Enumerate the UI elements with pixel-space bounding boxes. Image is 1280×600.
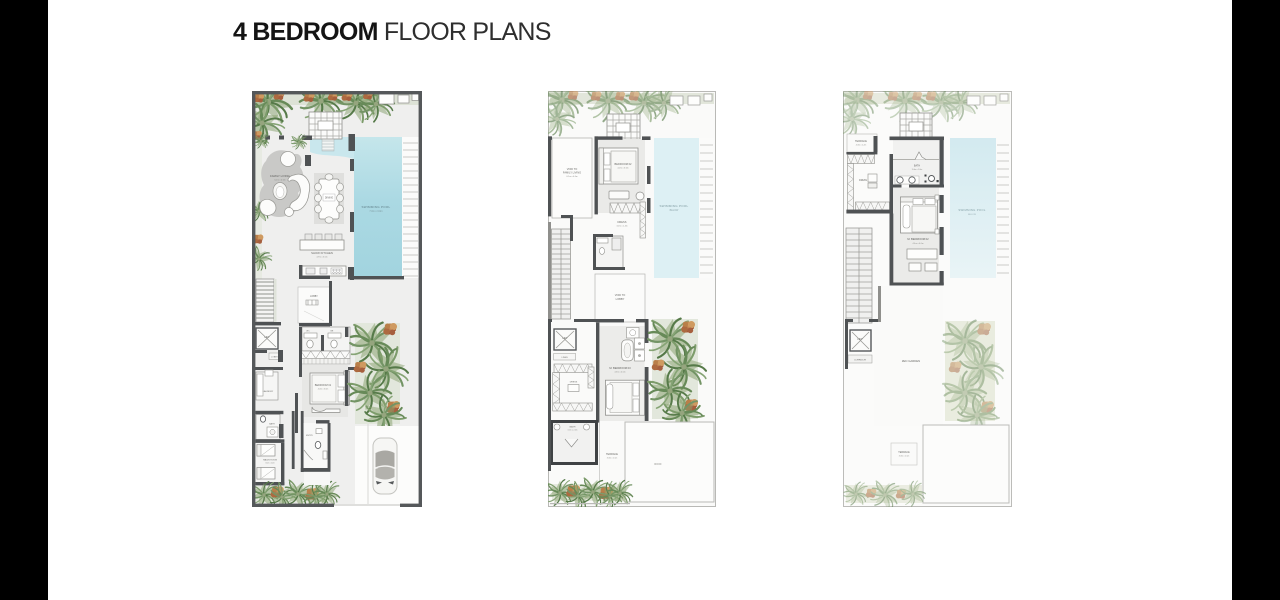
svg-text:SWIMMING POOL: SWIMMING POOL	[958, 208, 986, 212]
svg-text:BATH: BATH	[914, 165, 920, 168]
svg-text:3.3m x 1.5m: 3.3m x 1.5m	[607, 458, 618, 460]
svg-text:ROOF: ROOF	[654, 463, 662, 466]
svg-text:M. BEDROOM 03: M. BEDROOM 03	[609, 366, 631, 370]
svg-text:3.0m x 2.0m: 3.0m x 2.0m	[265, 462, 275, 464]
svg-text:LINEN: LINEN	[562, 357, 568, 359]
svg-text:BATH: BATH	[269, 423, 275, 426]
svg-text:BEDROOM 01: BEDROOM 01	[315, 384, 332, 387]
svg-text:TERRACE: TERRACE	[855, 140, 867, 143]
svg-text:DRESS: DRESS	[618, 220, 627, 224]
svg-text:ENTRY: ENTRY	[306, 435, 313, 437]
svg-text:LOBBY: LOBBY	[310, 296, 318, 298]
svg-text:VOID TO: VOID TO	[615, 293, 626, 297]
svg-text:4.9m x 3.0m: 4.9m x 3.0m	[316, 257, 327, 259]
svg-text:DINING: DINING	[325, 197, 334, 200]
svg-text:SHOW KITCHEN: SHOW KITCHEN	[311, 251, 333, 255]
svg-text:M. BEDROOM 02: M. BEDROOM 02	[907, 237, 929, 241]
svg-text:MAIDS ROOM: MAIDS ROOM	[263, 459, 277, 462]
svg-text:LIFT: LIFT	[562, 336, 568, 340]
svg-text:BATH: BATH	[570, 426, 576, 429]
svg-text:7.0m x 3.0m: 7.0m x 3.0m	[369, 210, 382, 213]
svg-text:VOID TO: VOID TO	[567, 167, 578, 171]
svg-text:4.0m x 3.6m: 4.0m x 3.6m	[617, 168, 628, 170]
svg-text:SWIMMING POOL: SWIMMING POOL	[659, 204, 688, 208]
svg-text:6.1m x 4.6m: 6.1m x 4.6m	[566, 176, 577, 178]
svg-text:LIFT: LIFT	[857, 337, 863, 341]
svg-text:3.1m x 2.4m: 3.1m x 2.4m	[568, 430, 578, 432]
svg-text:CORRIDOR: CORRIDOR	[854, 360, 866, 362]
svg-text:TERRACE: TERRACE	[606, 453, 618, 456]
svg-text:FAMILY LIVING: FAMILY LIVING	[270, 174, 290, 178]
svg-text:4.0m x 3.6m: 4.0m x 3.6m	[318, 389, 329, 391]
svg-text:3.2m x 1.4m: 3.2m x 1.4m	[616, 226, 627, 228]
svg-text:FAMILY LIVING: FAMILY LIVING	[563, 171, 581, 175]
svg-text:6.1m x 4.6m: 6.1m x 4.6m	[274, 180, 285, 182]
svg-text:4.6m x 4.0m: 4.6m x 4.0m	[614, 372, 625, 374]
svg-text:LAUNDRY: LAUNDRY	[263, 390, 274, 393]
svg-text:3.4m x 1.6m: 3.4m x 1.6m	[912, 169, 923, 171]
svg-text:3.3m x 1.5m: 3.3m x 1.5m	[899, 456, 910, 458]
svg-text:LOBBY: LOBBY	[616, 297, 625, 301]
svg-text:BELOW: BELOW	[968, 214, 977, 216]
svg-text:DRESS: DRESS	[570, 382, 578, 384]
svg-text:TERRACE: TERRACE	[898, 451, 910, 454]
svg-text:LIFT: LIFT	[264, 335, 270, 339]
svg-text:SWIMMING POOL: SWIMMING POOL	[361, 205, 390, 209]
svg-text:ZEN GARDEN: ZEN GARDEN	[902, 359, 920, 363]
svg-text:BEDROOM 02: BEDROOM 02	[614, 162, 632, 166]
svg-text:BELOW: BELOW	[670, 209, 679, 212]
svg-text:4.4m x 4.0m: 4.4m x 4.0m	[912, 243, 923, 245]
svg-text:DRESS: DRESS	[859, 180, 867, 182]
svg-text:4.3m x 1.2m: 4.3m x 1.2m	[856, 145, 867, 147]
svg-text:LOBBY: LOBBY	[271, 357, 278, 359]
